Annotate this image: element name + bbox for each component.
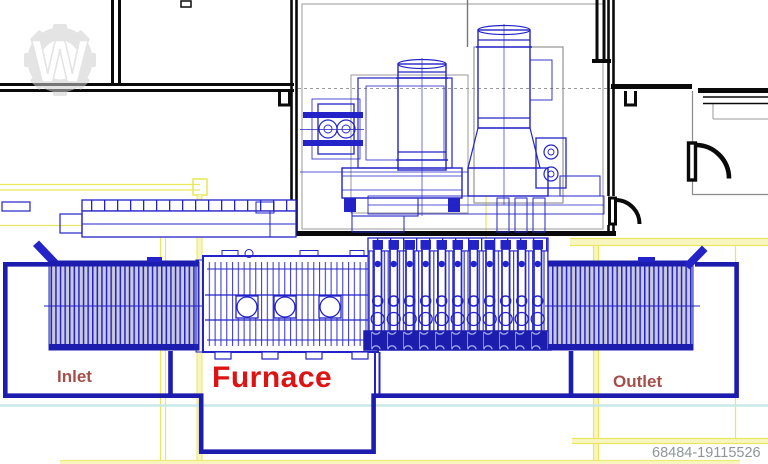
outlet-conveyor [545,246,708,351]
inlet-label: Inlet [57,367,92,387]
construction-lines [298,0,768,229]
inlet-conveyor [33,241,202,351]
blower-unit-left [300,58,468,232]
watermark-gear-icon: W [0,0,120,120]
outlet-label: Outlet [613,372,662,392]
listing-id-text: 68484-19115526 [652,445,761,461]
cad-floor-plan: Inlet Furnace Outlet 68484-19115526 W [0,0,768,464]
door-symbols [610,143,730,224]
charging-beam [2,200,296,237]
watermark-letter: W [32,28,89,95]
heater-bank [364,238,551,350]
furnace-label: Furnace [212,361,332,395]
